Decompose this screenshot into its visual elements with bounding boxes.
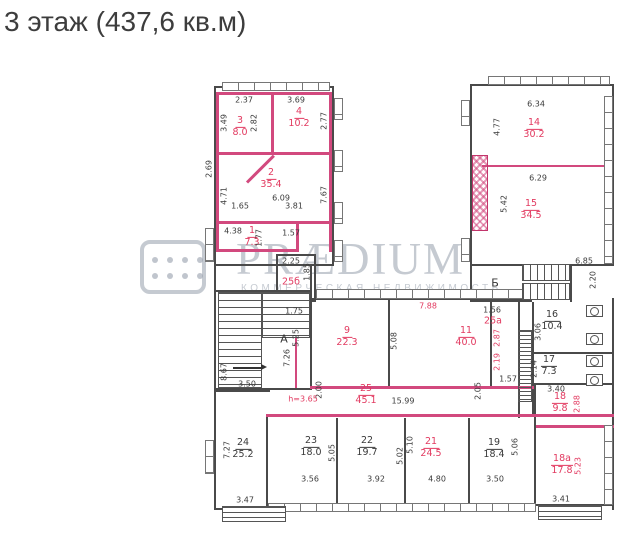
dimension-label: 4.80 xyxy=(428,475,446,484)
room-18-label: 189.8 xyxy=(552,392,568,414)
page-title: 3 этаж (437,6 кв.м) xyxy=(4,6,246,38)
dimension-label: 4.71 xyxy=(220,187,229,205)
dimension-label: 5.23 xyxy=(574,457,583,475)
wall-segment xyxy=(310,264,312,390)
room-number: 2 xyxy=(266,168,276,180)
room-number: 14 xyxy=(526,118,542,130)
room-area: 30.2 xyxy=(523,130,544,141)
wall-segment xyxy=(468,418,470,508)
dimension-label: 2.05 xyxy=(474,382,483,400)
dimension-label: 3.81 xyxy=(285,202,303,211)
room-area: 24.5 xyxy=(420,449,441,460)
dimension-label: 6.85 xyxy=(575,257,593,266)
room-area: 9.8 xyxy=(552,404,568,415)
highlight-wall-segment xyxy=(216,221,332,224)
room-25б-label: 25б xyxy=(280,278,302,289)
room-25а-label: 25а xyxy=(482,317,504,328)
dimension-label: 2.69 xyxy=(205,160,214,178)
dimension-label: 4.77 xyxy=(493,118,502,136)
room-area: 10.4 xyxy=(541,322,562,333)
room-number: 18а xyxy=(551,454,573,466)
window-strip xyxy=(604,96,613,264)
room-number: 19 xyxy=(486,438,502,450)
window-strip xyxy=(334,202,343,224)
room-number: 9 xyxy=(342,326,352,338)
room-number: 23 xyxy=(303,436,319,448)
dimension-label: 2.87 xyxy=(493,329,502,347)
dimension-label: 7.26 xyxy=(283,349,292,367)
highlight-wall-segment xyxy=(329,92,332,252)
dimension-label: 3.41 xyxy=(552,495,570,504)
dimension-label: 3.50 xyxy=(238,380,256,389)
room-number: 22 xyxy=(359,436,375,448)
highlight-wall-segment xyxy=(536,425,614,428)
dimension-label: 1.57 xyxy=(282,229,300,238)
highlight-wall-segment xyxy=(216,152,332,155)
window-strip xyxy=(268,503,536,512)
highlight-wall-segment xyxy=(216,249,299,252)
room-number: 4 xyxy=(294,107,304,119)
dimension-label: 7.27 xyxy=(223,441,232,459)
wall-segment xyxy=(336,418,338,508)
room-15-label: 1534.5 xyxy=(520,199,541,221)
window-strip xyxy=(205,228,214,262)
room-11-label: 1140.0 xyxy=(455,326,476,348)
room-14-label: 1430.2 xyxy=(523,118,544,140)
window-strip xyxy=(334,98,343,120)
dimension-label: 1.65 xyxy=(231,202,249,211)
floor-plan-page: 3 этаж (437,6 кв.м) PRÆDIUM КОММЕРЧЕСКАЯ… xyxy=(0,0,618,533)
dimension-label: 3.50 xyxy=(486,475,504,484)
room-9-label: 922.3 xyxy=(336,326,357,348)
room-21-label: 2124.5 xyxy=(420,437,441,459)
dimension-label: 1.56 xyxy=(483,306,501,315)
room-3-label: 38.0 xyxy=(232,116,247,138)
window-strip xyxy=(461,100,470,126)
window-strip xyxy=(334,150,343,172)
room-number: 24 xyxy=(235,438,251,450)
room-22-label: 2219.7 xyxy=(356,436,377,458)
wall-segment xyxy=(534,383,536,510)
entrance-steps xyxy=(222,506,286,522)
window-strip xyxy=(205,440,214,474)
room-area: 18.4 xyxy=(483,450,504,461)
dimension-label: 3.06 xyxy=(534,323,543,341)
dimension-label: 15.99 xyxy=(392,397,415,406)
dimension-label: 3.47 xyxy=(236,496,254,505)
highlight-wall-segment xyxy=(216,92,332,95)
room-number: 16 xyxy=(544,310,560,322)
highlight-wall-segment xyxy=(482,165,608,167)
dimension-label: 5.42 xyxy=(500,195,509,213)
room-25-label: 2545.1 xyxy=(355,384,376,406)
room-area: 7.3 xyxy=(541,367,557,378)
dimension-label: 3.92 xyxy=(367,475,385,484)
wall-segment xyxy=(214,264,334,266)
window-strip xyxy=(461,238,470,262)
room-16-label: 1610.4 xyxy=(541,310,562,332)
dimension-label: 8.67 xyxy=(220,363,229,381)
dimension-label: 1.85 xyxy=(303,263,312,281)
room-number: 17 xyxy=(541,355,557,367)
dimension-label: 7.67 xyxy=(320,186,329,204)
wc-fixture-icon xyxy=(586,305,603,317)
dimension-label: 6.34 xyxy=(527,100,545,109)
room-19-label: 1918.4 xyxy=(483,438,504,460)
dimension-label: 7.88 xyxy=(419,302,437,311)
window-strip xyxy=(604,425,613,505)
direction-arrow xyxy=(233,367,261,369)
wc-fixture-icon xyxy=(586,374,603,386)
wc-fixture-icon xyxy=(586,333,603,345)
wall-segment xyxy=(214,390,270,392)
room-24-label: 2425.2 xyxy=(232,438,253,460)
room-number: 11 xyxy=(458,326,474,338)
room-area: 45.1 xyxy=(355,396,376,407)
highlight-wall-segment xyxy=(266,414,614,417)
wc-fixture-icon xyxy=(586,355,603,367)
dimension-label: 6.29 xyxy=(529,174,547,183)
stair-treads xyxy=(522,283,570,300)
room-area: 22.3 xyxy=(336,338,357,349)
dimension-label: 5.06 xyxy=(511,438,520,456)
room-area: 18.0 xyxy=(300,448,321,459)
dimension-label: 5.25 xyxy=(292,329,301,347)
room-23-label: 2318.0 xyxy=(300,436,321,458)
floor-plan: 17.3235.438.0410.225б922.31140.01430.215… xyxy=(0,0,618,533)
dimension-label: 2.20 xyxy=(589,271,598,289)
room-area: 17.8 xyxy=(551,466,573,477)
room-number: 21 xyxy=(423,437,439,449)
room-18а-label: 18а17.8 xyxy=(551,454,573,476)
room-number: 25а xyxy=(482,317,504,328)
wall-segment xyxy=(266,416,268,510)
dimension-label: 4.38 xyxy=(224,227,242,236)
dimension-label: 1.75 xyxy=(285,307,303,316)
dimension-label: 1.77 xyxy=(255,229,264,247)
dimension-label: 2.37 xyxy=(235,96,253,105)
dimension-label: 5.08 xyxy=(390,332,399,350)
wall-segment xyxy=(470,300,532,302)
window-strip xyxy=(334,240,343,262)
dimension-label: 2.88 xyxy=(573,395,582,413)
window-strip xyxy=(488,76,610,85)
room-number: 15 xyxy=(523,199,539,211)
dimension-label: 2.19 xyxy=(493,353,502,371)
room-area: 10.2 xyxy=(288,119,309,130)
room-2-label: 235.4 xyxy=(260,168,281,190)
ceiling-height-note: h=3.65 xyxy=(288,395,318,404)
dimension-label: 3.56 xyxy=(301,475,319,484)
dimension-label: 2.25 xyxy=(282,257,300,266)
room-number: 18 xyxy=(552,392,568,404)
stairwell-label: А xyxy=(280,333,288,346)
room-number: 25б xyxy=(280,278,302,289)
room-area: 8.0 xyxy=(232,128,247,139)
dimension-label: 6.09 xyxy=(272,194,290,203)
dimension-label: 5.10 xyxy=(406,436,415,454)
highlight-wall-segment xyxy=(271,92,274,154)
dimension-label: 2.82 xyxy=(250,114,259,132)
dimension-label: 3.49 xyxy=(220,114,229,132)
room-4-label: 410.2 xyxy=(288,107,309,129)
dimension-label: 3.69 xyxy=(287,96,305,105)
room-area: 34.5 xyxy=(520,211,541,222)
room-area: 35.4 xyxy=(260,180,281,191)
stair-treads xyxy=(522,264,570,281)
room-area: 19.7 xyxy=(356,448,377,459)
direction-arrow xyxy=(261,364,267,370)
entrance-steps xyxy=(538,505,602,520)
window-strip xyxy=(222,82,330,91)
dimension-label: 3.40 xyxy=(547,385,565,394)
highlighted-wall-hatch xyxy=(472,155,488,231)
dimension-label: 2.14 xyxy=(530,360,539,378)
room-number: 3 xyxy=(235,116,245,128)
dimension-label: 2.77 xyxy=(320,112,329,130)
highlight-wall-segment xyxy=(310,386,534,389)
room-17-label: 177.3 xyxy=(541,355,557,377)
wall-segment xyxy=(570,264,572,302)
dimension-label: 5.05 xyxy=(328,444,337,462)
dimension-label: 5.02 xyxy=(396,447,405,465)
room-area: 25.2 xyxy=(232,450,253,461)
stairwell-label: Б xyxy=(491,277,499,290)
window-strip xyxy=(316,289,532,299)
room-number: 25 xyxy=(358,384,374,396)
dimension-label: 1.57 xyxy=(499,375,517,384)
room-area: 40.0 xyxy=(455,338,476,349)
